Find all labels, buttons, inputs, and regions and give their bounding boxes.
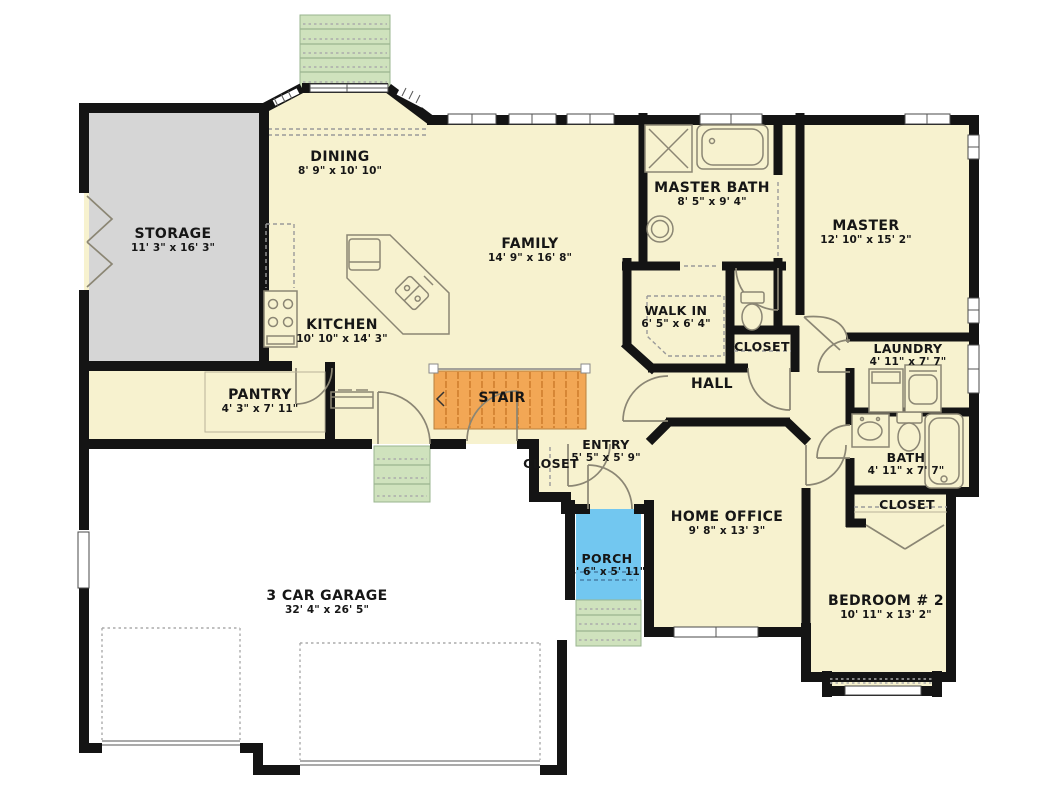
- room-label-master-bath: MASTER BATH 8' 5" x 9' 4": [654, 181, 770, 209]
- room-label-stair: STAIR: [478, 391, 525, 406]
- room-label-hall: HALL: [691, 377, 733, 392]
- floor-plan-page: STORAGE 11' 3" x 16' 3" DINING 8' 9" x 1…: [0, 0, 1048, 800]
- master-bath-sink: [647, 216, 673, 242]
- hall-bath-toilet: [897, 412, 922, 451]
- porch-steps: [576, 600, 641, 646]
- room-label-porch: PORCH 4' 6" x 5' 11": [569, 551, 646, 579]
- room-label-storage: STORAGE 11' 3" x 16' 3": [131, 227, 215, 255]
- room-label-bedroom2-closet: CLOSET: [879, 497, 935, 512]
- dryer: [905, 365, 941, 412]
- master-shower: [645, 125, 692, 172]
- room-label-bedroom2: BEDROOM # 2 10' 11" x 13' 2": [828, 594, 944, 622]
- garage-entry-steps: [374, 446, 430, 502]
- room-label-bath: BATH 4' 11" x 7' 7": [868, 450, 945, 478]
- room-label-home-office: HOME OFFICE 9' 8" x 13' 3": [671, 510, 783, 538]
- room-label-laundry: LAUNDRY 4' 11" x 7' 7": [870, 341, 947, 369]
- room-label-pantry: PANTRY 4' 3" x 7' 11": [222, 388, 299, 416]
- room-label-entry: ENTRY 5' 5" x 5' 9": [571, 437, 640, 465]
- room-label-garage: 3 CAR GARAGE 32' 4" x 26' 5": [266, 589, 387, 617]
- room-label-kitchen: KITCHEN 10' 10" x 14' 3": [296, 318, 388, 346]
- room-label-entry-closet: CLOSET: [523, 456, 579, 471]
- deck-steps: [300, 15, 390, 88]
- master-bathtub: [697, 125, 768, 169]
- hall-bath-sink: [852, 414, 889, 447]
- room-label-dining: DINING 8' 9" x 10' 10": [298, 150, 382, 178]
- kitchen-range: [264, 291, 297, 347]
- master-toilet: [741, 292, 764, 330]
- room-label-master-closet: CLOSET: [734, 339, 790, 354]
- room-label-walk-in: WALK IN 6' 5" x 6' 4": [641, 303, 710, 331]
- room-label-family: FAMILY 14' 9" x 16' 8": [488, 237, 572, 265]
- washer: [869, 369, 903, 412]
- room-label-master: MASTER 12' 10" x 15' 2": [820, 219, 912, 247]
